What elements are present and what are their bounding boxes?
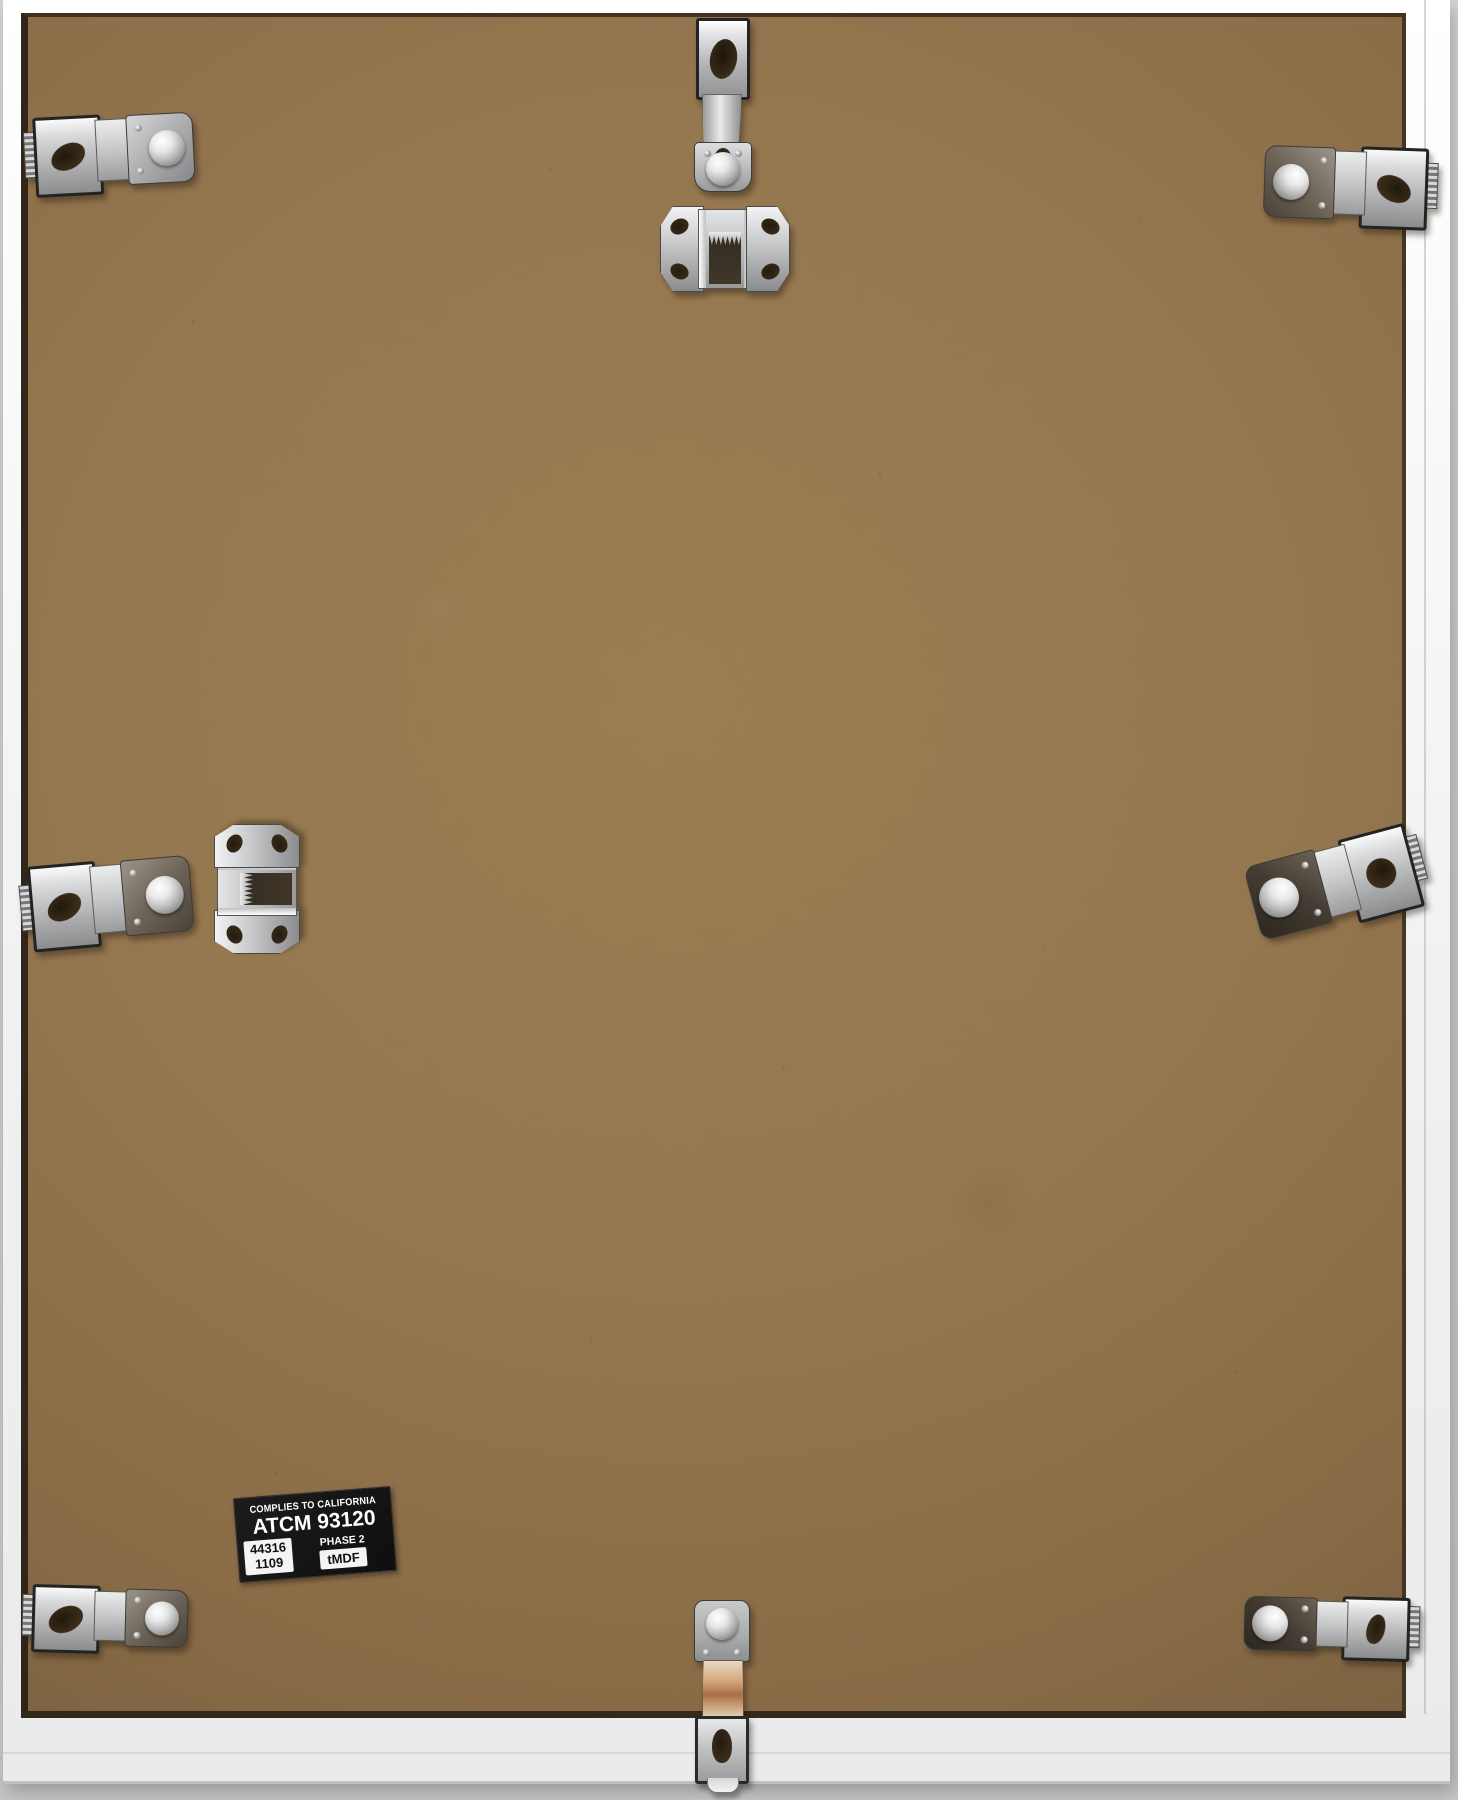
screw-dimple — [134, 1597, 141, 1604]
screw-dimple — [1301, 861, 1310, 870]
spring-clip-bottom-right — [1241, 1594, 1420, 1657]
hanger-hole — [759, 260, 783, 282]
sawtooth-teeth — [709, 232, 741, 245]
dome-rivet — [706, 1608, 738, 1640]
spring-clip-bottom-left — [21, 1584, 191, 1650]
screw-dimple — [134, 918, 142, 926]
spring-clip-top-left — [22, 110, 198, 193]
dome-rivet — [1255, 873, 1304, 922]
clip-neck — [1313, 1601, 1348, 1648]
dome-rivet — [148, 129, 186, 167]
spring-clip-top-center — [694, 18, 752, 192]
dome-rivet — [706, 152, 740, 186]
screw-dimple — [129, 869, 137, 877]
dome-rivet — [1272, 163, 1309, 200]
clip-base-plate — [1263, 145, 1336, 219]
sticker-material: tMDF — [320, 1547, 368, 1570]
clip-oval-hole — [1372, 169, 1416, 208]
screw-dimple — [1301, 1605, 1308, 1612]
clip-raised-box — [695, 1716, 749, 1784]
clip-neck — [93, 1591, 128, 1642]
sawtooth-teeth — [240, 873, 253, 905]
spring-clip-top-right — [1261, 143, 1440, 225]
hanger-hole — [759, 215, 783, 237]
keyhole-slot — [712, 1729, 732, 1763]
hanger-notch — [240, 873, 292, 905]
screw-dimple — [735, 150, 742, 157]
clip-raised-box — [1341, 1596, 1411, 1662]
dome-rivet — [1252, 1605, 1289, 1642]
screw-dimple — [703, 1649, 710, 1656]
hanger-end-lobe — [214, 910, 300, 954]
clip-grip-tip — [707, 1778, 739, 1793]
clip-oval-hole — [707, 37, 741, 81]
sticker-phase: PHASE 2 — [319, 1533, 365, 1548]
clip-oval-hole — [46, 137, 90, 177]
screw-dimple — [135, 124, 142, 131]
clip-base-plate — [694, 142, 752, 192]
clip-oval-hole — [1363, 855, 1400, 892]
sticker-lot-box: 44316 1109 — [243, 1538, 294, 1576]
hanger-hole — [268, 923, 290, 947]
clip-neck — [1331, 150, 1367, 215]
compliance-sticker: COMPLIES TO CALIFORNIA ATCM 93120 44316 … — [233, 1486, 397, 1583]
hanger-hole — [668, 260, 692, 282]
clip-neck-copper-reflection — [702, 1660, 744, 1718]
screw-dimple — [704, 150, 711, 157]
hanger-hole — [268, 832, 290, 856]
hanger-notch — [709, 232, 741, 284]
keyhole-slot — [1363, 1612, 1388, 1646]
sawtooth-hanger-top-center — [660, 206, 790, 292]
clip-oval-hole — [44, 1600, 87, 1638]
spring-clip-bottom-center — [694, 1600, 750, 1792]
hanger-hole — [223, 923, 245, 947]
screw-dimple — [1313, 908, 1322, 917]
spring-clip-middle-left — [17, 853, 197, 948]
screw-dimple — [137, 167, 144, 174]
screw-dimple — [133, 1632, 140, 1639]
hanger-end-lobe — [214, 824, 300, 868]
dome-rivet — [145, 1601, 180, 1636]
sticker-lot-code: 1109 — [251, 1555, 288, 1573]
screw-dimple — [734, 1649, 741, 1656]
screw-dimple — [1320, 157, 1327, 164]
clip-raised-box — [696, 18, 750, 100]
photo-frame-back-scene: COMPLIES TO CALIFORNIA ATCM 93120 44316 … — [0, 0, 1458, 1800]
clip-oval-hole — [43, 887, 87, 927]
clip-base-plate — [120, 855, 195, 937]
clip-raised-box — [32, 114, 104, 197]
frame-profile-line-right — [1424, 0, 1426, 1714]
clip-neck — [702, 94, 742, 144]
sawtooth-hanger-middle-left — [214, 824, 300, 954]
clip-base-plate — [1243, 1596, 1317, 1652]
screw-dimple — [1318, 202, 1325, 209]
sticker-phase-column: PHASE 2 tMDF — [296, 1531, 389, 1571]
hanger-end-lobe — [746, 206, 790, 292]
screw-dimple — [1301, 1636, 1308, 1643]
clip-base-plate — [124, 1589, 188, 1649]
hanger-flange — [699, 210, 706, 288]
hanger-bar — [698, 209, 752, 289]
hanger-hole — [668, 215, 692, 237]
hanger-flange — [218, 908, 296, 915]
clip-raised-box — [31, 1584, 101, 1654]
hanger-bar — [217, 862, 297, 916]
hanger-hole — [223, 832, 245, 856]
clip-base-plate — [694, 1600, 750, 1662]
clip-base-plate — [125, 112, 196, 185]
clip-raised-box — [1358, 146, 1429, 230]
dome-rivet — [144, 874, 185, 915]
